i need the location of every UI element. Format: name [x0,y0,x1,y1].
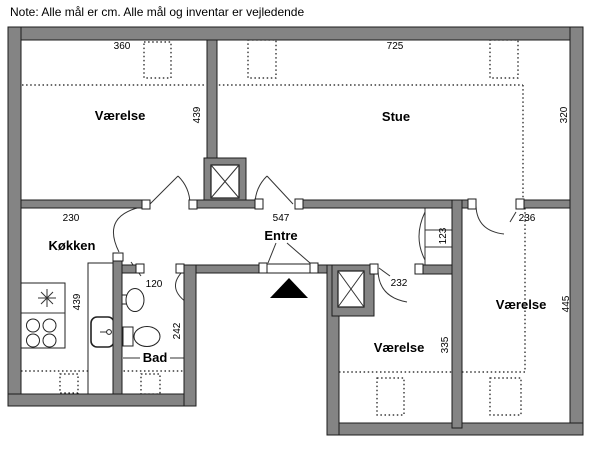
wall-stairwell-left [184,265,196,406]
wall-segment [423,265,452,274]
door-post [189,200,197,209]
door-post [142,200,150,209]
door-post [415,264,423,274]
wall-bedroom-living-divider [207,40,217,158]
wall-outer-left [8,27,21,406]
dim-360: 360 [114,41,131,52]
wall-outer-right [570,27,583,435]
wall-segment [303,200,468,208]
room-label-kitchen: Køkken [49,238,96,253]
door-post [468,199,476,209]
floor-plan-drawing: Værelse Stue Køkken Entre Bad Værelse Væ… [0,0,600,449]
door-post [370,264,378,274]
dim-242: 242 [172,322,183,339]
room-label-bedroom-right: Værelse [496,297,547,312]
wall-segment [21,200,149,208]
bathroom-sink-icon [126,289,144,312]
toilet-tank-icon [123,327,133,346]
dim-236: 236 [519,213,536,224]
wall-segment [122,265,137,273]
room-label-hall: Entre [264,228,297,243]
door-post [136,264,144,273]
dim-120: 120 [146,279,163,290]
door-post [516,199,524,209]
door-post [255,199,263,209]
room-label-bathroom: Bad [143,350,168,365]
dim-547: 547 [273,213,290,224]
dim-320: 320 [559,106,570,123]
dim-leader-line [510,212,516,222]
toilet-bowl-icon [134,327,160,347]
floor-plan: Note: Alle mål er cm. Alle mål og invent… [0,0,600,449]
room-label-bedroom-bottom: Værelse [374,340,425,355]
bathroom-fixtures [122,289,160,347]
door-post [113,253,123,261]
skylight-icon [490,378,521,415]
wall-segment [197,200,263,208]
shaft-1 [211,165,239,198]
room-label-living-room: Stue [382,109,410,124]
label-leader-line [287,243,310,263]
wall-outer-top [8,27,583,40]
skylight-icon [60,374,78,393]
wall-outer-bottom-left [8,394,196,406]
wall-segment [196,265,259,273]
faucet-icon [107,330,112,335]
wall-kitchen-bath-divider [113,253,122,394]
closet-door-arc [419,212,425,260]
stove-burner-icon [27,319,40,332]
dim-230: 230 [63,213,80,224]
skylight-icon [248,40,276,78]
dim-439-top: 439 [192,106,203,123]
skylight-icon [490,40,518,78]
dim-123: 123 [438,227,449,244]
entrance-arrow-icon [270,278,308,298]
dim-leader-line [379,268,390,276]
dim-725: 725 [387,41,404,52]
door-arc [476,206,504,234]
dim-445: 445 [561,295,572,312]
skylight-icon [144,42,171,78]
entrance-door-leaf [267,264,310,273]
door-post [310,263,318,273]
door-arc [113,206,146,252]
wall-segment [318,265,327,273]
stove-burner-icon [27,334,40,347]
skylight-icon [377,378,404,415]
door-leaf-line [150,176,178,204]
shaft-2 [338,271,364,307]
stove-burner-icon [43,334,56,347]
dim-335: 335 [440,336,451,353]
wall-bedroom-divider [452,200,462,428]
door-post [176,264,184,273]
door-leaf-line [267,176,293,204]
kitchen-fixtures [21,263,114,394]
door-post [259,263,267,273]
skylight-icon [141,374,160,394]
stove-burner-icon [43,319,56,332]
dim-232: 232 [391,278,408,289]
door-post [295,199,303,209]
label-leader-line [268,243,276,263]
dim-439-kitchen: 439 [72,293,83,310]
wall-segment [524,200,570,208]
door-arc [178,176,190,204]
room-label-bedroom-top-left: Værelse [95,108,146,123]
